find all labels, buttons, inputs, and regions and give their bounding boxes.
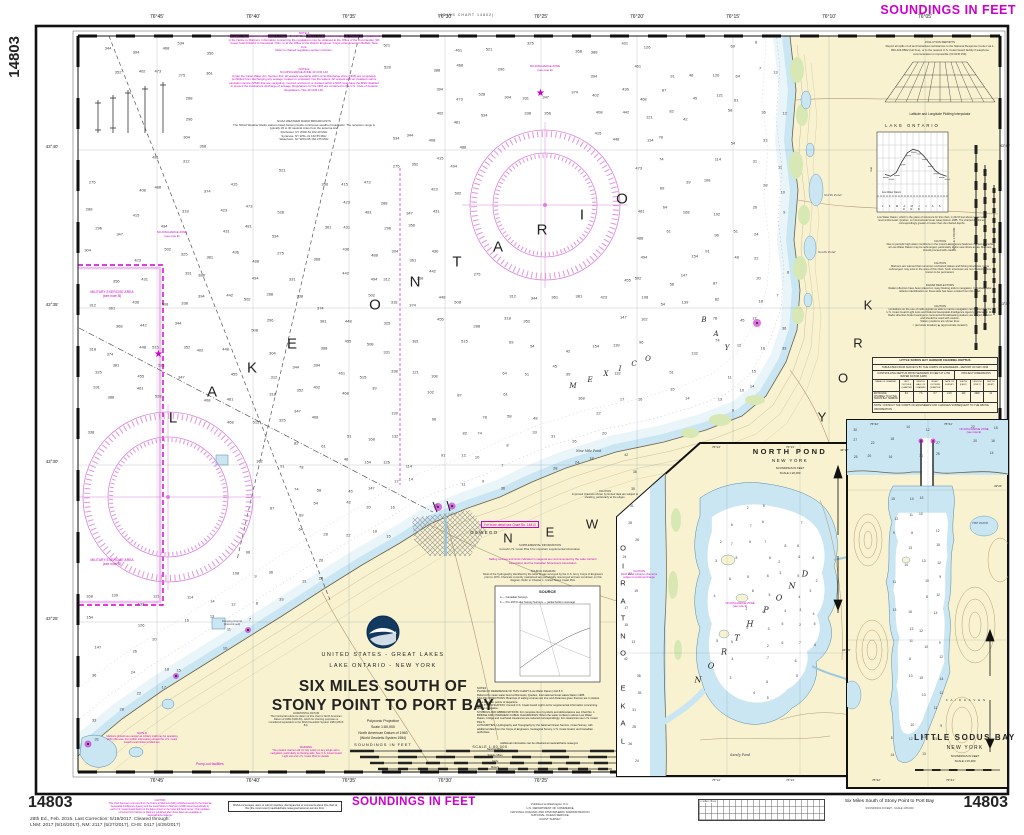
sounding-value: 6 [795,659,797,663]
sounding-value: 114 [715,157,721,162]
map-letter: K [864,298,873,313]
sounding-value: 455 [345,339,352,344]
sounding-value: 431 [621,40,628,45]
sounding-value: 24 [623,555,627,559]
sounding-value: 331 [522,96,529,101]
sounding-value: 10 [924,645,928,649]
sounding-value: 132 [392,434,399,439]
sounding-value: 6 [798,555,800,559]
sounding-value: 347 [178,374,185,379]
sounding-value: 374 [204,188,211,193]
sounding-value: 14 [891,753,895,757]
sounding-value: 121 [412,369,419,374]
sounding-value: 114 [187,595,193,600]
sounding-value: 461 [455,48,462,53]
sounding-value: 15 [936,543,940,547]
sounding-value: 502 [164,247,171,252]
sounding-value: 20 [867,454,871,458]
sounding-value: 45 [348,488,352,493]
sounding-value: 48 [734,254,738,259]
sounding-value: 11 [919,439,923,443]
sounding-value: 13 [922,752,926,756]
map-letter: C [631,360,636,368]
sounding-value: 20 [756,276,760,281]
sounding-value: 26 [572,439,576,444]
sounding-value: 436 [132,299,139,304]
sounding-value: 494 [641,255,648,260]
generated-labels-layer: LAKEONTARIONEWYORKMEXICOBAYNORTHPONDOIRA… [0,0,1024,835]
map-letter: K [247,360,257,377]
sounding-value: 14 [934,611,938,615]
sounding-value: 331 [383,350,390,355]
map-letter: O [645,355,651,363]
sounding-value: 13 [433,503,437,508]
sounding-value: 16 [761,346,765,351]
sounding-value: 481 [245,224,252,229]
sounding-value: 368 [417,276,424,281]
sounding-value: 4 [813,612,815,616]
sounding-value: 436 [232,250,239,255]
map-letter: E [620,684,625,693]
sounding-value: 48 [344,456,348,461]
sounding-value: 3 [768,627,770,631]
sounding-value: 347 [542,94,549,99]
sounding-value: 108 [642,294,649,299]
sounding-value: 96 [639,339,643,344]
sounding-value: 7 [501,463,503,468]
sounding-value: 4 [714,594,716,598]
sounding-value: 18 [994,426,998,430]
map-letter: X [604,370,609,378]
sounding-value: 8 [909,657,911,661]
sounding-value: 338 [524,111,531,116]
sounding-value: 368 [116,323,123,328]
sounding-value: 312 [271,374,278,379]
sounding-value: 4 [762,610,764,614]
sounding-value: 468 [342,391,349,396]
sounding-value: 2 [799,623,801,627]
sounding-value: 7 [750,524,752,528]
sounding-value: 114 [406,464,412,469]
sounding-value: 36 [782,326,786,331]
sounding-value: 388 [434,68,441,73]
sounding-value: 468 [163,46,170,51]
sounding-value: 402 [139,69,146,74]
sounding-value: 82 [463,431,467,436]
sounding-value: 402 [313,385,320,390]
sounding-value: 58 [507,414,511,419]
sounding-value: 374 [107,351,114,356]
sounding-value: 275 [179,73,186,78]
sounding-value: 11 [893,580,897,584]
sounding-value: 468 [640,97,647,102]
sounding-value: 3 [799,608,801,612]
sounding-value: 22 [971,425,975,429]
sounding-value: 13 [922,693,926,697]
sounding-value: 352 [523,318,530,323]
sounding-value: 10 [223,646,227,651]
sounding-value: 26 [628,742,632,746]
sounding-value: 325 [279,418,286,423]
sounding-value: 481 [365,209,372,214]
sounding-value: 16 [390,505,394,510]
sounding-value: 528 [155,393,162,398]
sounding-value: 534 [481,112,488,117]
sounding-value: 304 [269,351,276,356]
sounding-value: 8 [755,40,757,45]
sounding-value: 139 [682,300,689,305]
sounding-value: 20 [602,430,606,435]
sounding-value: 22 [871,441,875,445]
sounding-value: 13 [909,674,913,678]
sounding-value: 3 [779,571,781,575]
sounding-value: 408 [429,138,436,143]
sounding-value: 448 [613,136,620,141]
sounding-value: 431 [343,225,350,230]
sounding-value: 27 [853,438,857,442]
sounding-value: 126 [138,622,145,627]
sounding-value: 42 [566,349,570,354]
sounding-value: 521 [158,363,165,368]
sounding-value: 423 [343,200,350,205]
sounding-value: 344 [531,295,538,300]
sounding-value: 8 [787,269,789,274]
map-letter: R [620,579,625,588]
sounding-value: 87 [662,87,666,92]
sounding-value: 121 [153,594,160,599]
sounding-value: 4 [784,609,786,613]
sounding-value: 494 [161,223,168,228]
sounding-value: 275 [393,164,400,169]
sounding-value: 361 [551,295,558,300]
sounding-value: 39 [686,180,690,185]
sounding-value: 22 [346,533,350,538]
sounding-value: 11 [461,482,465,487]
sounding-value: 15 [934,737,938,741]
sounding-value: 388 [321,345,328,350]
sounding-value: 528 [478,92,485,97]
sounding-value: 48 [689,73,693,78]
sounding-value: 8 [506,443,508,448]
map-letter: E [546,525,555,540]
sounding-value: 325 [384,321,391,326]
sounding-value: 74 [477,430,481,435]
sounding-value: 402 [592,92,599,97]
sounding-value: 22 [754,256,758,261]
sounding-value: 288 [266,292,273,297]
sounding-value: 494 [252,275,259,280]
sounding-value: 5 [731,640,733,644]
sounding-value: 318 [89,346,96,351]
sounding-value: 408 [596,109,603,114]
sounding-value: 461 [227,397,234,402]
sounding-value: 28 [553,465,557,470]
sounding-value: 347 [294,409,301,414]
sounding-value: 394 [133,50,140,55]
sounding-value: 61 [321,443,325,448]
sounding-value: 515 [253,420,260,425]
sounding-value: 14 [910,497,914,501]
sounding-value: 488 [637,235,644,240]
map-letter: B [701,316,706,324]
sounding-value: 402 [437,110,444,115]
sounding-value: 3 [746,626,748,630]
sounding-value: 108 [233,570,240,575]
map-letter: O [616,191,628,208]
sounding-value: 304 [183,135,190,140]
sounding-value: 361 [325,225,332,230]
sounding-value: 36 [92,672,96,677]
sounding-value: 361 [109,305,116,310]
sounding-value: 481 [638,208,645,213]
sounding-value: 36 [269,570,273,575]
sounding-value: 17 [624,606,628,610]
sounding-value: 448 [345,318,352,323]
map-letter: R [537,222,548,239]
sounding-value: 18 [372,529,376,534]
map-letter: I [580,207,584,224]
sounding-value: 12 [940,691,944,695]
sounding-value: 481 [152,155,159,160]
map-letter: K [620,701,625,710]
sounding-value: 275 [277,250,284,255]
map-letter: T [734,634,739,643]
sounding-value: 448 [222,347,229,352]
sounding-value: 528 [384,64,391,69]
sounding-value: 288 [473,324,480,329]
sounding-value: 488 [154,185,161,190]
sounding-value: 5 [747,575,749,579]
sounding-value: 423 [600,295,607,300]
sounding-value: 338 [296,293,303,298]
sounding-value: 64 [502,371,506,376]
sounding-value: 87 [713,280,717,285]
sounding-value: 8 [784,544,786,548]
sounding-value: 78 [713,316,717,321]
sounding-value: 394 [198,294,205,299]
sounding-value: 494 [450,163,457,168]
sounding-value: 126 [713,73,720,78]
sounding-value: 318 [182,209,189,214]
sounding-value: 38 [633,470,637,474]
sounding-value: 16 [888,455,892,459]
sounding-value: 15 [624,623,628,627]
sounding-value: 51 [733,229,737,234]
sounding-value: 6 [749,540,751,544]
sounding-value: 168 [86,593,93,598]
sounding-value: 318 [504,316,511,321]
sounding-value: 36 [501,486,505,491]
sounding-value: 154 [364,460,371,465]
map-letter: T [452,254,461,271]
sounding-value: 126 [644,44,651,49]
sounding-value: 381 [320,319,327,324]
sounding-value: 139 [391,411,398,416]
sounding-value: 508 [367,342,374,347]
sounding-value: 6 [762,520,764,524]
sounding-value: 347 [406,211,413,216]
sounding-value: 442 [140,323,147,328]
sounding-value: 33 [532,430,536,435]
map-letter: A [493,239,503,256]
sounding-value: 10 [925,579,929,583]
sounding-value: 356 [544,111,551,116]
sounding-value: 6 [731,523,733,527]
sounding-value: 91 [670,74,674,79]
sounding-value: 102 [713,212,720,217]
sounding-value: 473 [364,179,371,184]
sounding-value: 423 [134,257,141,262]
sounding-value: 82 [294,440,298,445]
sounding-value: 312 [383,277,390,282]
sounding-value: 473 [155,68,162,73]
sounding-value: 368 [200,143,207,148]
sounding-value: 147 [681,272,688,277]
sounding-value: 13 [210,614,214,619]
sounding-value: 132 [614,370,621,375]
map-letter: R [721,648,727,657]
sounding-value: 12 [939,655,943,659]
sounding-value: 6 [766,680,768,684]
sounding-value: 3 [715,559,717,563]
sounding-value: 12 [895,517,899,521]
sounding-value: 356 [113,279,120,284]
sounding-value: 13 [773,69,777,74]
sounding-value: 35 [631,487,635,491]
sounding-value: 13 [893,608,897,612]
sounding-value: 74 [659,157,663,162]
sounding-value: 13 [920,496,924,500]
sounding-value: 31 [302,579,306,584]
map-letter: N [503,531,512,546]
sounding-value: 415 [341,181,348,186]
sounding-value: 14 [685,396,689,401]
sounding-value: 415 [231,181,238,186]
sounding-value: 78 [658,134,662,139]
sounding-value: 521 [486,46,493,51]
sounding-value: 521 [279,167,286,172]
sounding-value: 423 [431,187,438,192]
map-letter: N [695,676,702,685]
sounding-value: 2 [720,540,722,544]
sounding-value: 288 [186,95,193,100]
sounding-value: 17 [162,685,166,690]
sounding-value: 312 [183,158,190,163]
sounding-value: 9 [940,724,942,728]
sounding-value: 28 [632,725,636,729]
sounding-value: 2 [746,607,748,611]
sounding-value: 22 [596,411,600,416]
sounding-value: 381 [412,338,419,343]
sounding-value: 5 [796,674,798,678]
sounding-value: 5 [716,639,718,643]
sounding-value: 28 [628,521,632,525]
sounding-value: 275 [474,272,481,277]
sounding-value: 10 [910,723,914,727]
sounding-value: 6 [767,574,769,578]
sounding-value: 338 [88,430,95,435]
sounding-value: 102 [641,317,648,322]
sounding-value: 42 [624,453,628,457]
sounding-value: 96 [714,232,718,237]
sounding-value: 102 [256,459,263,464]
sounding-value: 352 [297,387,304,392]
sounding-value: 368 [314,256,321,261]
sounding-value: 27 [936,441,940,445]
sounding-value: 9 [939,575,941,579]
sounding-value: 461 [634,64,641,69]
sounding-value: 147 [95,644,102,649]
sounding-value: 473 [456,96,463,101]
sounding-value: 121 [716,92,723,97]
sounding-value: 20 [366,504,370,509]
map-letter: L [621,736,625,745]
sounding-value: 15 [752,368,756,373]
sounding-value: 331 [185,270,192,275]
sounding-value: 502 [244,296,251,301]
sounding-value: 12 [461,453,465,458]
sounding-value: 6 [781,641,783,645]
sounding-value: 39 [566,371,570,376]
sounding-value: 31 [551,433,555,438]
sounding-value: 96 [246,550,250,555]
sounding-value: 13 [910,627,914,631]
sounding-value: 78 [299,465,303,470]
sounding-value: 14 [904,563,908,567]
sounding-value: 502 [635,276,642,281]
sounding-value: 468 [227,420,234,425]
sounding-value: 408 [139,187,146,192]
sounding-value: 296 [498,67,505,72]
nautical-chart-page: SOUNDINGS IN FEET 14803 (JOINS CHART 148… [0,0,1024,835]
sounding-value: 352 [412,161,419,166]
sounding-value: 442 [429,269,436,274]
sounding-value: 15 [176,667,180,672]
sounding-value: 374 [571,90,578,95]
sounding-value: 344 [175,320,182,325]
sounding-value: 54 [731,140,735,145]
map-letter: M [569,382,576,390]
sounding-value: 13 [922,735,926,739]
sounding-value: 296 [95,226,102,231]
sounding-value: 534 [177,41,184,46]
sounding-value: 381 [576,294,583,299]
sounding-value: 91 [280,464,284,469]
sounding-value: 38 [637,674,641,678]
sounding-value: 108 [704,178,711,183]
sounding-value: 7 [764,540,766,544]
sounding-value: 7 [801,521,803,525]
sounding-value: 74 [294,486,298,491]
map-letter: O [708,662,715,671]
sounding-value: 13 [631,640,635,644]
sounding-value: 10 [781,190,785,195]
sounding-value: 473 [635,166,642,171]
sounding-value: 12 [937,561,941,565]
sounding-value: 442 [342,270,349,275]
sounding-value: 33 [279,597,283,602]
sounding-value: 154 [86,614,93,619]
sounding-value: 8 [256,600,258,605]
sounding-value: 431 [141,276,148,281]
sounding-value: 10 [740,387,744,392]
sounding-value: 442 [623,109,630,114]
sounding-value: 31 [753,159,757,164]
sounding-value: 304 [84,248,91,253]
sounding-value: 275 [89,179,96,184]
sounding-value: 82 [715,296,719,301]
sounding-value: 7 [759,66,761,71]
